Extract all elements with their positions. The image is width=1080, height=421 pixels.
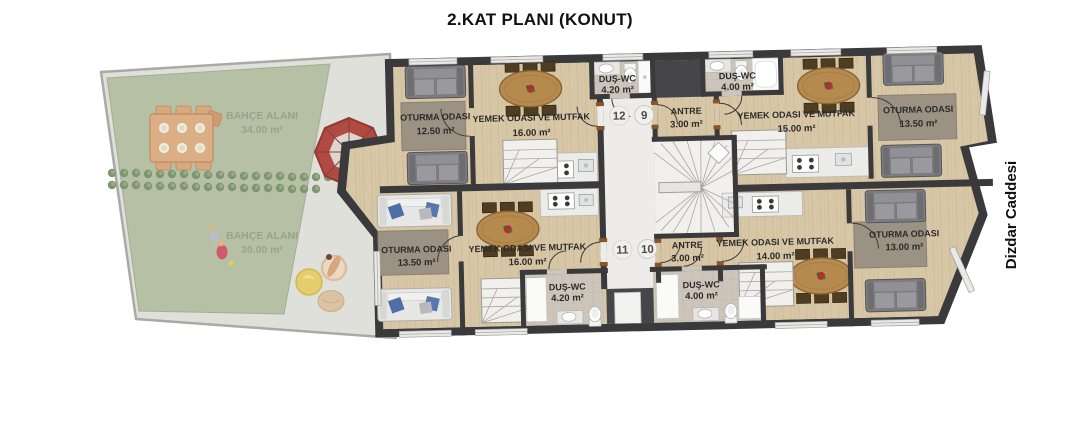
label-bl-living-name: OTURMA ODASI <box>381 244 451 256</box>
label-tl-dining-size: 16.00 m² <box>512 127 550 139</box>
building: 12 9 11 10 OTURMA ODASI 12.50 m² YEMEK O… <box>334 45 1003 339</box>
sofa-tl-top <box>405 65 466 98</box>
entry-door <box>614 292 641 326</box>
unit-number-11: 11 <box>616 244 629 256</box>
plan-title: 2.KAT PLANI (KONUT) <box>447 10 633 29</box>
garden-lower-label: BAHÇE ALANI <box>226 230 298 242</box>
kitchen-bl <box>540 188 599 216</box>
sofa-br-bottom <box>865 278 926 311</box>
unit-stair-tl <box>503 139 558 184</box>
label-br-bath-size: 4.00 m² <box>685 290 718 302</box>
label-br-dining-size: 14.00 m² <box>756 251 794 263</box>
kitchen-tr <box>785 147 872 178</box>
label-br-living-size: 13.00 m² <box>885 242 923 254</box>
dining-set-tl <box>499 61 562 116</box>
floor-plan-page: 2.KAT PLANI (KONUT) <box>0 0 1080 421</box>
garden-upper-label: BAHÇE ALANI <box>226 110 298 122</box>
label-t-antre-size: 3.00 m² <box>670 119 703 131</box>
sofa-bl-top <box>377 194 452 228</box>
label-tr-dining-size: 15.00 m² <box>777 123 815 135</box>
street-label: Dizdar Caddesi <box>1003 161 1020 269</box>
sofa-tl-bottom <box>407 151 468 184</box>
dining-set-tr <box>797 58 860 113</box>
rug-tr <box>878 94 957 141</box>
label-tl-bath-size: 4.20 m² <box>601 84 634 96</box>
label-tl-living-size: 12.50 m² <box>416 126 454 138</box>
label-bl-living-size: 13.50 m² <box>398 257 436 269</box>
label-tr-living-size: 13.50 m² <box>899 118 937 130</box>
label-tr-bath-name: DUŞ-WC <box>719 70 757 81</box>
unit-number-10: 10 <box>641 244 654 256</box>
unit-number-9: 9 <box>641 110 648 122</box>
garden-lower-size: 30.00 m² <box>241 244 284 256</box>
corridor-floor <box>602 98 657 289</box>
floor-plan: 2.KAT PLANI (KONUT) <box>0 0 1080 421</box>
label-tr-bath-size: 4.00 m² <box>721 81 754 93</box>
label-tr-living-name: OTURMA ODASI <box>883 104 953 116</box>
label-tl-bath-name: DUŞ-WC <box>599 73 637 84</box>
label-bl-bath-size: 4.20 m² <box>551 293 584 305</box>
label-tl-living-name: OTURMA ODASI <box>400 111 470 123</box>
label-b-antre-size: 3.00 m² <box>671 253 704 265</box>
label-bl-bath-name: DUŞ-WC <box>549 281 587 292</box>
sofa-br-top <box>865 189 926 222</box>
label-br-bath-name: DUŞ-WC <box>683 279 721 290</box>
label-br-living-name: OTURMA ODASI <box>869 228 939 240</box>
unit-number-12: 12 <box>613 110 626 122</box>
dining-set-br <box>789 248 852 303</box>
garden-upper-size: 34.00 m² <box>241 124 284 136</box>
label-t-antre-name: ANTRE <box>671 106 702 117</box>
sofa-bl-bottom <box>377 288 452 322</box>
label-bl-dining-size: 16.00 m² <box>509 256 547 268</box>
unit-stair-tr <box>732 130 787 175</box>
shaft <box>653 59 704 98</box>
label-b-antre-name: ANTRE <box>672 240 703 251</box>
sofa-tr-top <box>883 52 944 85</box>
garden-dining-set <box>150 106 223 170</box>
sofa-tr-bottom <box>881 144 942 177</box>
